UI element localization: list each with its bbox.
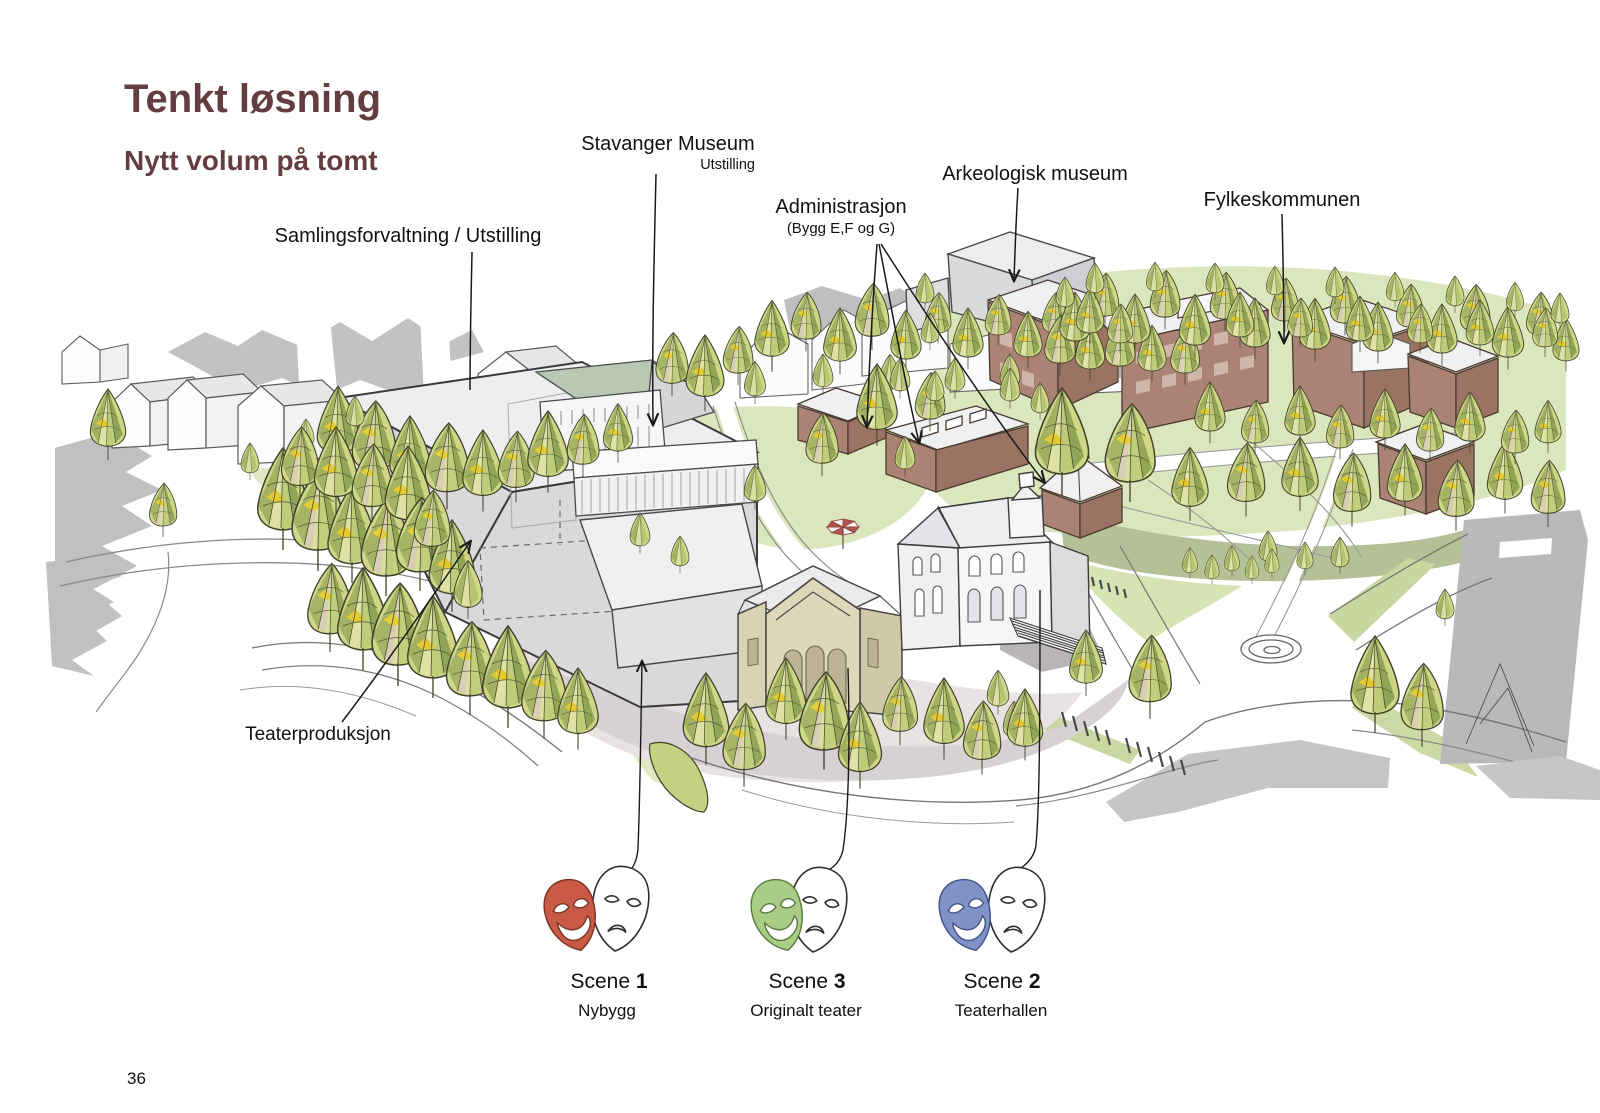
svg-text:Teaterproduksjon: Teaterproduksjon xyxy=(245,724,391,745)
svg-text:Nybygg: Nybygg xyxy=(578,1001,636,1020)
svg-text:Stavanger Museum: Stavanger Museum xyxy=(581,133,754,155)
svg-text:Nytt volum på tomt: Nytt volum på tomt xyxy=(124,145,378,176)
svg-text:Administrasjon: Administrasjon xyxy=(775,196,906,218)
svg-text:Scene 3: Scene 3 xyxy=(768,970,845,993)
svg-text:Scene 1: Scene 1 xyxy=(570,970,647,993)
svg-text:(Bygg E,F og G): (Bygg E,F og G) xyxy=(787,220,895,237)
svg-text:Samlingsforvaltning / Utstilli: Samlingsforvaltning / Utstilling xyxy=(275,225,542,247)
svg-text:Originalt teater: Originalt teater xyxy=(750,1001,862,1020)
svg-text:36: 36 xyxy=(127,1069,146,1088)
svg-text:Arkeologisk museum: Arkeologisk museum xyxy=(942,163,1128,185)
svg-text:Scene 2: Scene 2 xyxy=(963,970,1040,993)
svg-text:Utstilling: Utstilling xyxy=(700,157,755,173)
svg-text:Fylkeskommunen: Fylkeskommunen xyxy=(1204,189,1361,211)
svg-text:Teaterhallen: Teaterhallen xyxy=(955,1001,1048,1020)
svg-text:Tenkt løsning: Tenkt løsning xyxy=(124,77,381,121)
